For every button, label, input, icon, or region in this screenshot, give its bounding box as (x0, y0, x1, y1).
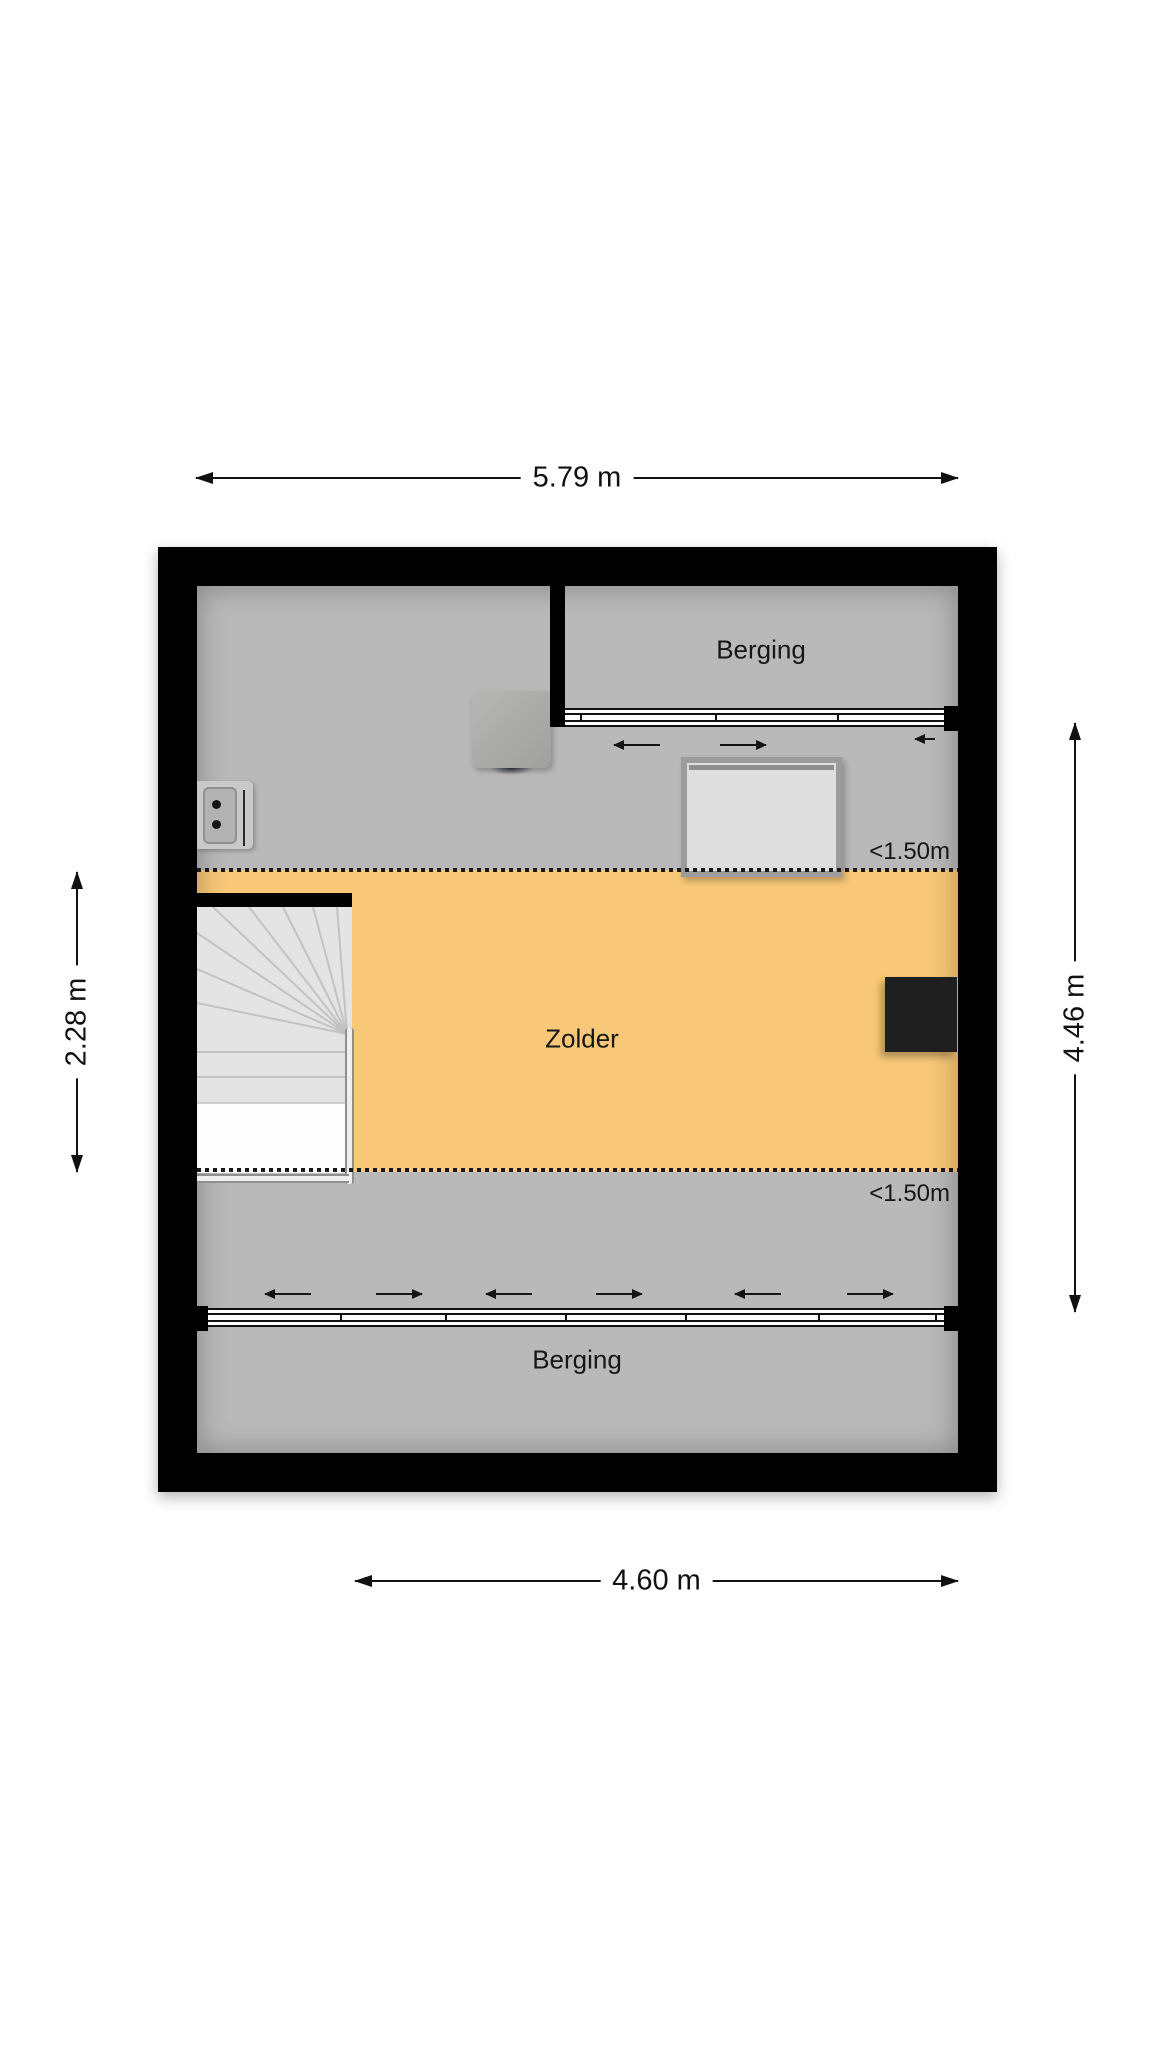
roof-window-frame (689, 765, 834, 770)
slide-arrow-right-icon (376, 1293, 422, 1295)
track-tick (445, 1313, 447, 1322)
slide-arrow-right-icon (720, 744, 766, 746)
headroom-line-lower (197, 1168, 958, 1172)
track-tick (685, 1313, 687, 1322)
headroom-line-upper (197, 868, 958, 872)
interior-wall-top (550, 584, 565, 727)
slide-arrow-left-icon (915, 738, 935, 740)
dimension-top-label: 5.79 m (521, 462, 634, 495)
dimension-left-label: 2.28 m (61, 966, 94, 1079)
slide-arrow-left-icon (614, 744, 660, 746)
track-tick (580, 713, 582, 722)
sliding-track-top (565, 708, 952, 727)
stair-railing-right (345, 1028, 354, 1184)
dimension-top: 5.79 m (196, 477, 958, 479)
dimension-bottom-label: 4.60 m (600, 1565, 713, 1598)
slide-arrow-left-icon (265, 1293, 311, 1295)
floor-plan: Berging Zolder Berging <1.50m <1.50m 5.7… (0, 0, 1152, 2048)
room-label-berging-top: Berging (716, 635, 806, 666)
wall-unit-knob (212, 820, 221, 829)
sliding-track-bottom (197, 1308, 958, 1327)
wall-unit (203, 787, 237, 844)
roof-window (681, 757, 842, 877)
slide-arrow-left-icon (735, 1293, 781, 1295)
track-tick (340, 1313, 342, 1322)
slide-arrow-right-icon (596, 1293, 642, 1295)
stairwell-wall (197, 893, 352, 907)
height-marker-upper: <1.50m (869, 838, 950, 866)
track-stub (190, 1306, 208, 1331)
slide-arrow-right-icon (847, 1293, 893, 1295)
track-tick (715, 713, 717, 722)
dimension-right-label: 4.46 m (1059, 961, 1092, 1074)
track-tick (837, 713, 839, 722)
cabinet (472, 691, 551, 768)
track-stub (944, 1306, 958, 1331)
dimension-right: 4.46 m (1074, 723, 1076, 1312)
room-label-berging-bottom: Berging (532, 1345, 622, 1376)
wall-unit-pipe (243, 790, 245, 846)
track-tick (818, 1313, 820, 1322)
staircase (197, 907, 352, 1173)
height-marker-lower: <1.50m (869, 1180, 950, 1208)
room-label-zolder: Zolder (545, 1024, 619, 1055)
stair-railing-bottom (197, 1174, 349, 1183)
track-tick (565, 1313, 567, 1322)
track-tick (935, 1313, 937, 1322)
chimney-block (885, 977, 957, 1052)
dimension-left: 2.28 m (76, 872, 78, 1172)
track-stub (944, 706, 958, 731)
slide-arrow-left-icon (486, 1293, 532, 1295)
dimension-bottom: 4.60 m (355, 1580, 958, 1582)
wall-unit-knob (212, 800, 221, 809)
